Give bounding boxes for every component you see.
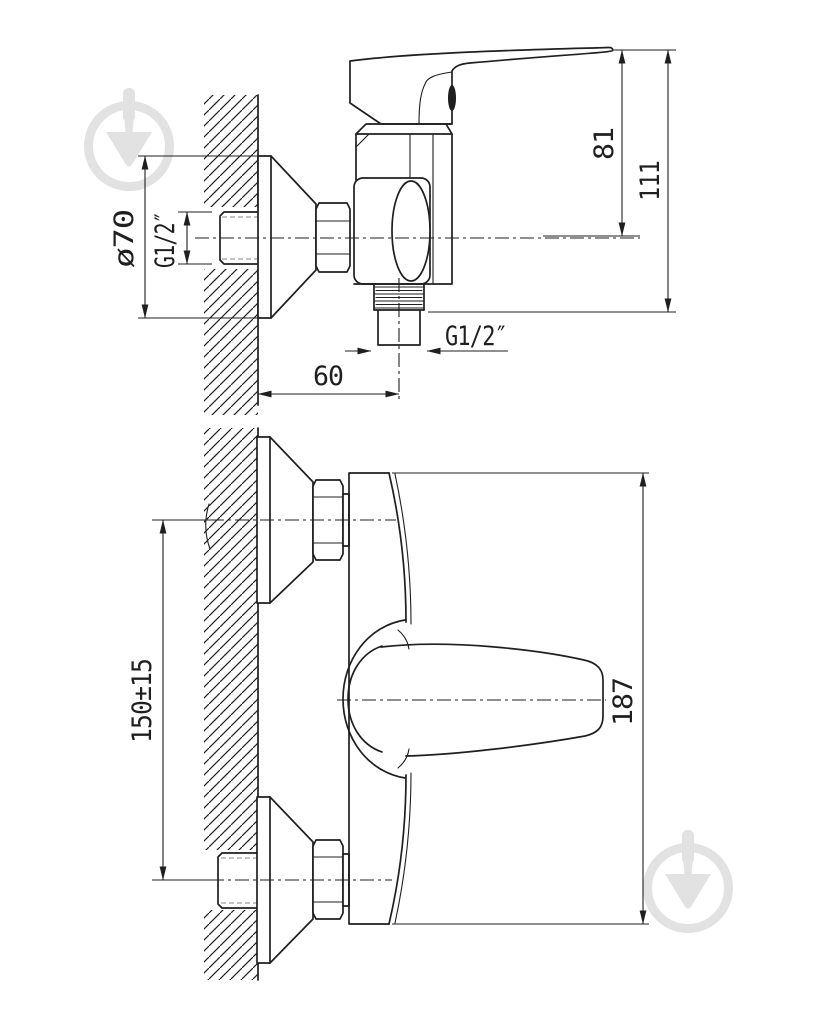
watermark-logo-top-left (89, 88, 170, 187)
side-view: ø70 G1/2″ 81 111 60 G1/2″ (109, 47, 676, 415)
dimension-label-flange-diameter: ø70 (109, 210, 140, 268)
dimension-label-111: 111 (635, 161, 666, 201)
dimension-lever-height: 81 (543, 50, 640, 236)
cartridge-dome (343, 620, 405, 778)
handle-ball (348, 646, 382, 752)
escutcheon-side (258, 156, 316, 318)
technical-drawing-page: ø70 G1/2″ 81 111 60 G1/2″ (0, 0, 819, 1009)
dimension-label-187: 187 (608, 678, 639, 726)
handle-screw-cap (448, 85, 456, 111)
dimension-label-60: 60 (313, 361, 343, 392)
dimension-label-81: 81 (589, 128, 620, 160)
dimension-inlet-spacing: 150±15 (127, 520, 210, 880)
shower-mixer-dimension-drawing: ø70 G1/2″ 81 111 60 G1/2″ (0, 0, 819, 1009)
front-view: 150±15 187 (127, 428, 649, 980)
dimension-total-height: 111 (428, 50, 676, 312)
mixer-body-side (354, 134, 452, 284)
dimension-wall-thread: G1/2″ (150, 212, 212, 268)
watermark-logo-bottom-right (648, 830, 729, 929)
dimension-label-150: 150±15 (127, 659, 158, 743)
mixer-body-front (343, 473, 603, 924)
dimension-overall-size: 187 (392, 473, 649, 924)
dimension-wall-to-outlet: 60 (258, 361, 399, 394)
lever-handle-side (350, 47, 613, 134)
dimension-label-wall-thread: G1/2″ (150, 212, 181, 268)
dimension-label-outlet-thread: G1/2″ (445, 321, 507, 352)
dimension-outlet-thread: G1/2″ (345, 321, 508, 352)
